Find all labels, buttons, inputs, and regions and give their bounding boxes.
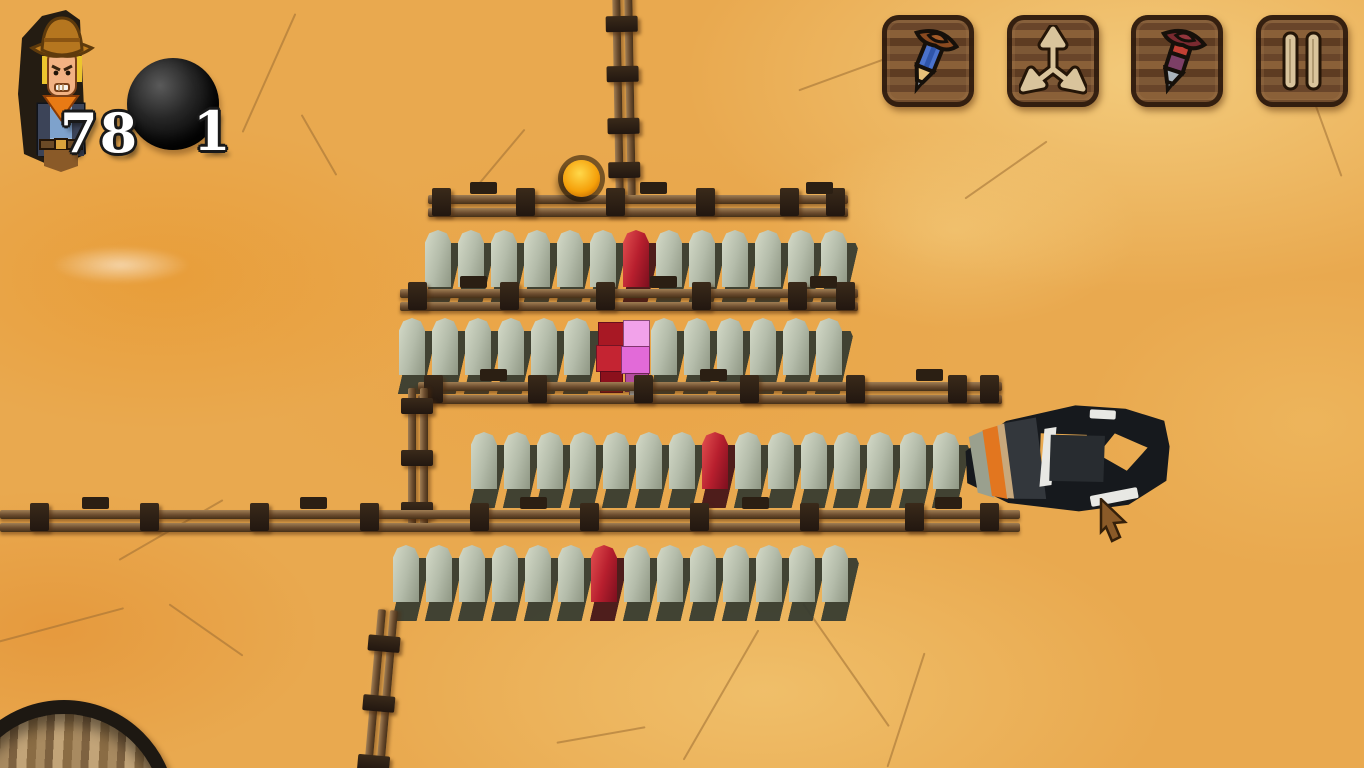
domino-top xyxy=(756,545,782,602)
move-tool-button[interactable] xyxy=(1007,15,1099,107)
domino-top xyxy=(591,545,617,602)
domino-gray[interactable] xyxy=(866,432,899,510)
fence-row1-bottom[interactable] xyxy=(400,287,858,319)
crack-line xyxy=(169,603,244,656)
sand-highlight xyxy=(52,246,190,284)
domino-top xyxy=(750,318,776,375)
domino-top xyxy=(834,432,860,489)
domino-top xyxy=(684,318,710,375)
domino-top xyxy=(702,432,728,489)
fence-row3-bottom[interactable] xyxy=(0,508,1020,540)
ball-stock-count: 1 xyxy=(193,104,233,158)
crack-line xyxy=(964,141,1047,200)
domino-gray[interactable] xyxy=(635,432,668,510)
domino-top xyxy=(525,545,551,602)
domino-top xyxy=(603,432,629,489)
crack-line xyxy=(242,13,297,133)
domino-stock-count: 78 xyxy=(60,106,139,160)
fence-vertical-bottom[interactable] xyxy=(360,609,404,768)
domino-top xyxy=(459,545,485,602)
domino-gray[interactable] xyxy=(755,545,788,623)
domino-top xyxy=(504,432,530,489)
domino-top xyxy=(722,230,748,287)
domino-gray[interactable] xyxy=(425,545,458,623)
domino-top xyxy=(789,545,815,602)
fence-vertical-top[interactable] xyxy=(608,0,641,196)
domino-gray[interactable] xyxy=(623,545,656,623)
domino-gray[interactable] xyxy=(602,432,635,510)
domino-top xyxy=(465,318,491,375)
domino-gray[interactable] xyxy=(458,545,491,623)
game-screen: 78 1 xyxy=(0,0,1364,768)
domino-top xyxy=(822,545,848,602)
domino-gray[interactable] xyxy=(668,432,701,510)
domino-top xyxy=(867,432,893,489)
domino-top xyxy=(524,230,550,287)
domino-gray[interactable] xyxy=(569,432,602,510)
crack-line xyxy=(301,114,338,176)
domino-top xyxy=(393,545,419,602)
crack-line xyxy=(683,630,760,761)
three-way-arrows-icon xyxy=(1019,25,1087,97)
domino-top xyxy=(564,318,590,375)
domino-top xyxy=(755,230,781,287)
domino-top xyxy=(425,230,451,287)
barrel[interactable] xyxy=(0,700,176,768)
domino-gray[interactable] xyxy=(788,545,821,623)
draw-tool-button[interactable] xyxy=(882,15,974,107)
domino-top xyxy=(735,432,761,489)
domino-top xyxy=(689,230,715,287)
domino-top xyxy=(432,318,458,375)
fence-vertical-left[interactable] xyxy=(404,388,434,528)
crack-line xyxy=(0,607,124,643)
fence-row2-bottom[interactable] xyxy=(418,380,1002,412)
pencil-cowboy-icon xyxy=(895,23,961,99)
domino-top xyxy=(557,230,583,287)
domino-top xyxy=(690,545,716,602)
domino-top xyxy=(471,432,497,489)
domino-top xyxy=(570,432,596,489)
color-tool-button[interactable] xyxy=(1131,15,1223,107)
domino-top xyxy=(426,545,452,602)
domino-gray[interactable] xyxy=(470,432,503,510)
domino-top xyxy=(537,432,563,489)
domino-gray[interactable] xyxy=(689,545,722,623)
crack-line xyxy=(798,59,883,92)
trigger-ball[interactable] xyxy=(563,160,600,197)
red-crayon-cowboy-icon xyxy=(1144,23,1210,99)
domino-gray[interactable] xyxy=(800,432,833,510)
domino-row-4 xyxy=(392,545,854,623)
domino-top xyxy=(816,318,842,375)
domino-top xyxy=(783,318,809,375)
domino-gray[interactable] xyxy=(833,432,866,510)
domino-top xyxy=(623,230,649,287)
domino-top xyxy=(491,230,517,287)
mine-cart[interactable] xyxy=(953,392,1177,521)
domino-top xyxy=(657,545,683,602)
domino-gray[interactable] xyxy=(656,545,689,623)
domino-top xyxy=(768,432,794,489)
domino-gray[interactable] xyxy=(821,545,854,623)
domino-top xyxy=(900,432,926,489)
domino-gray[interactable] xyxy=(899,432,932,510)
domino-top xyxy=(636,432,662,489)
domino-gray[interactable] xyxy=(767,432,800,510)
domino-red[interactable] xyxy=(701,432,734,510)
domino-top xyxy=(651,318,677,375)
domino-top xyxy=(669,432,695,489)
cursor-arrow-icon xyxy=(1098,498,1134,546)
domino-gray[interactable] xyxy=(557,545,590,623)
domino-gray[interactable] xyxy=(491,545,524,623)
domino-top xyxy=(531,318,557,375)
domino-top xyxy=(590,230,616,287)
domino-top xyxy=(558,545,584,602)
fence-row1-top[interactable] xyxy=(428,193,848,225)
pause-button[interactable] xyxy=(1256,15,1348,107)
domino-red[interactable] xyxy=(590,545,623,623)
domino-gray[interactable] xyxy=(722,545,755,623)
crack-line xyxy=(557,726,646,744)
domino-top xyxy=(717,318,743,375)
domino-top xyxy=(624,545,650,602)
pause-icon xyxy=(1272,27,1332,95)
crack-line xyxy=(887,653,926,768)
domino-top xyxy=(498,318,524,375)
domino-top xyxy=(492,545,518,602)
domino-top xyxy=(399,318,425,375)
domino-top xyxy=(801,432,827,489)
domino-top xyxy=(723,545,749,602)
domino-gray[interactable] xyxy=(524,545,557,623)
